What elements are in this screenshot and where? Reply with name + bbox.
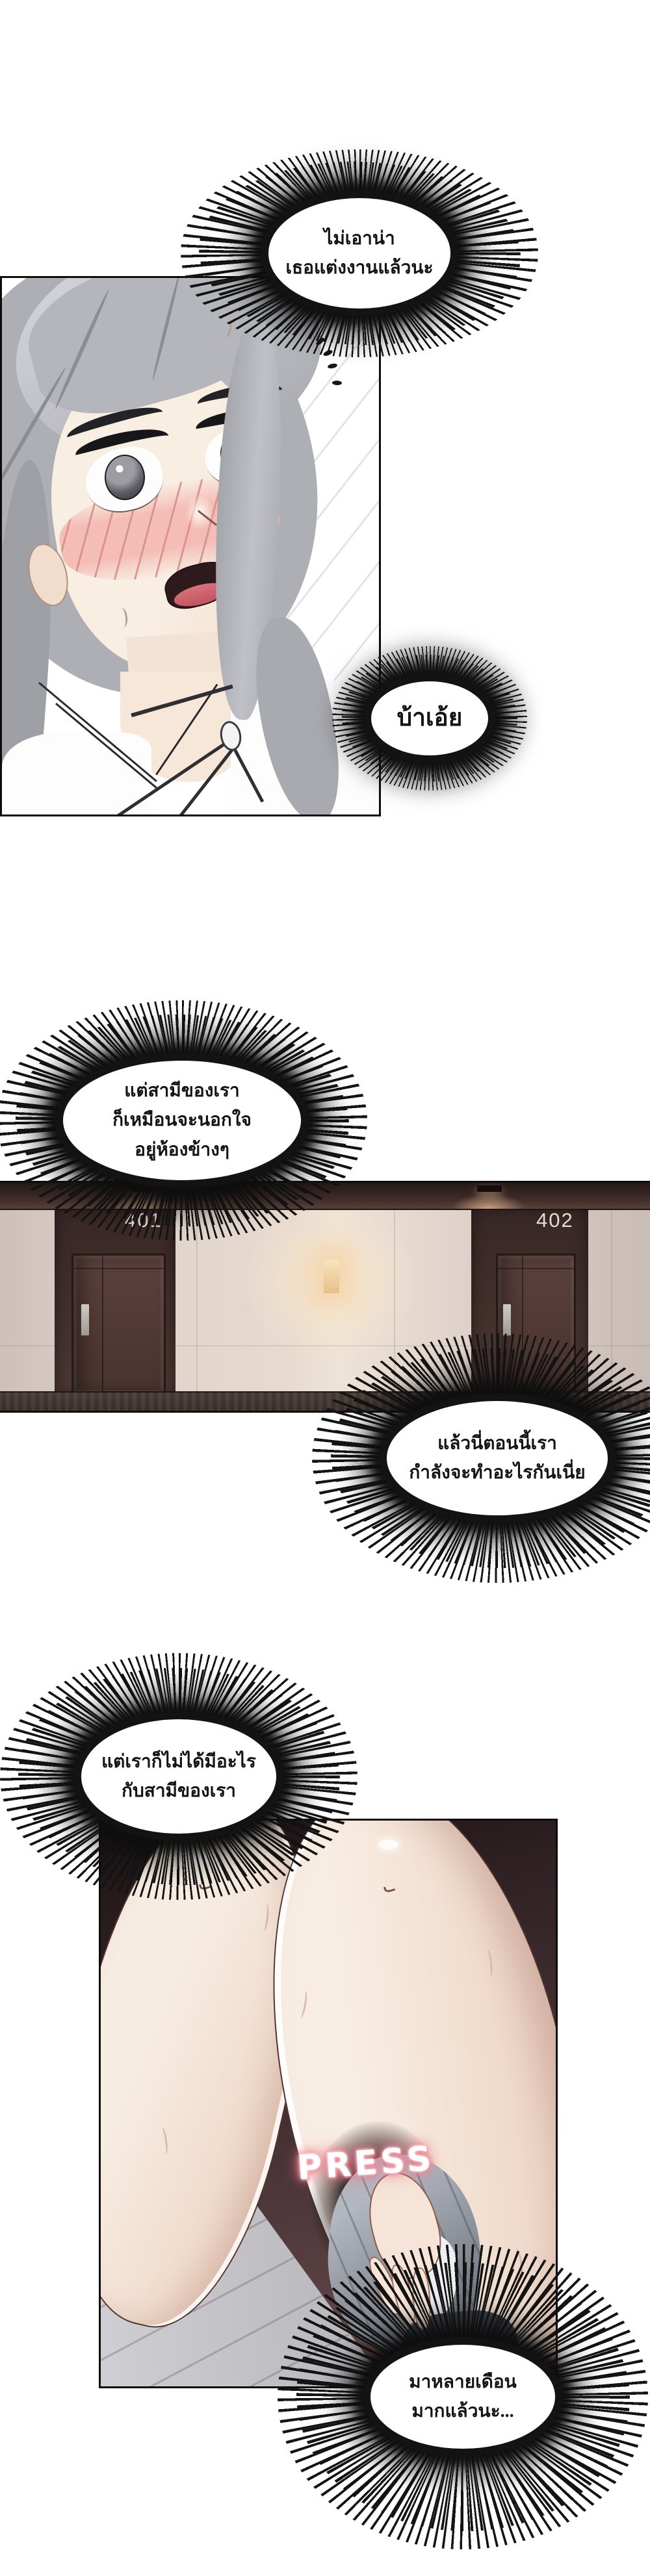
thought-bubble-2: บ้าเอ้ย [332,646,527,790]
bubble-line: กับสามีของเรา [122,1776,236,1806]
bubble-text-area: มาหลายเดือน มากแล้วนะ... [370,2345,555,2449]
door-number-402: 402 [536,1209,574,1232]
bubble-line: เธอแต่งงานแล้วนะ [285,253,433,283]
bubble-line: มากแล้วนะ... [411,2397,513,2426]
thought-bubble-5: แต่เราก็ไม่ได้มีอะไร กับสามีของเรา [0,1653,357,1900]
bubble-text-area: แต่เราก็ไม่ได้มีอะไร กับสามีของเรา [81,1719,276,1834]
thought-bubble-3: แต่สามีของเรา ก็เหมือนจะนอกใจ อยู่ห้องข้… [0,1000,367,1241]
thought-bubble-6: มาหลายเดือน มากแล้วนะ... [278,2244,648,2549]
bubble-text-area: แต่สามีของเรา ก็เหมือนจะนอกใจ อยู่ห้องข้… [63,1061,301,1180]
thought-bubble-4: แล้วนี่ตอนนี้เรา กำลังจะทำอะไรกันเนี่ย [312,1333,650,1583]
bubble-line: กำลังจะทำอะไรกันเนี่ย [409,1458,585,1487]
door-402-lock [502,1304,512,1336]
bubble-line: แล้วนี่ตอนนี้เรา [437,1429,557,1458]
surprise-tick-mark [332,381,342,386]
shirt-shoulder-left [2,733,151,816]
thought-bubble-1: ไม่เอาน่า เธอแต่งงานแล้วนะ [181,149,538,357]
bubble-text-area: ไม่เอาน่า เธอแต่งงานแล้วนะ [268,198,450,309]
ceiling-light [477,1185,502,1192]
bubble-line: แต่เราก็ไม่ได้มีอะไร [101,1747,256,1776]
bubble-line: แต่สามีของเรา [124,1076,239,1105]
bubble-line: ไม่เอาน่า [324,224,395,253]
bubble-text-area: แล้วนี่ตอนนี้เรา กำลังจะทำอะไรกันเนี่ย [387,1401,608,1515]
bubble-text-area: บ้าเอ้ย [371,681,488,755]
bubble-line: ก็เหมือนจะนอกใจ [112,1105,252,1135]
bubble-line: อยู่ห้องข้างๆ [135,1135,229,1165]
knee-highlight [379,1840,398,1849]
door-401-lock [81,1304,90,1336]
bubble-line: บ้าเอ้ย [397,699,463,738]
webtoon-page: 401 402 PRESS ไม่เอาน่า เ [0,0,650,2576]
wall-lamp [324,1259,339,1293]
bubble-line: มาหลายเดือน [409,2368,517,2397]
